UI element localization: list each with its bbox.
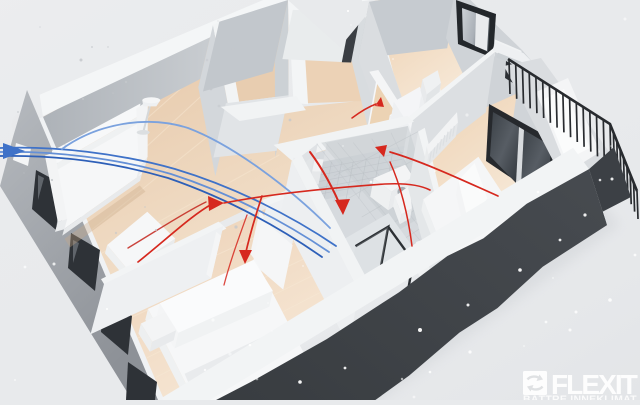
svg-text:BÄTTRE INNEKLIMAT: BÄTTRE INNEKLIMAT [523, 393, 637, 401]
